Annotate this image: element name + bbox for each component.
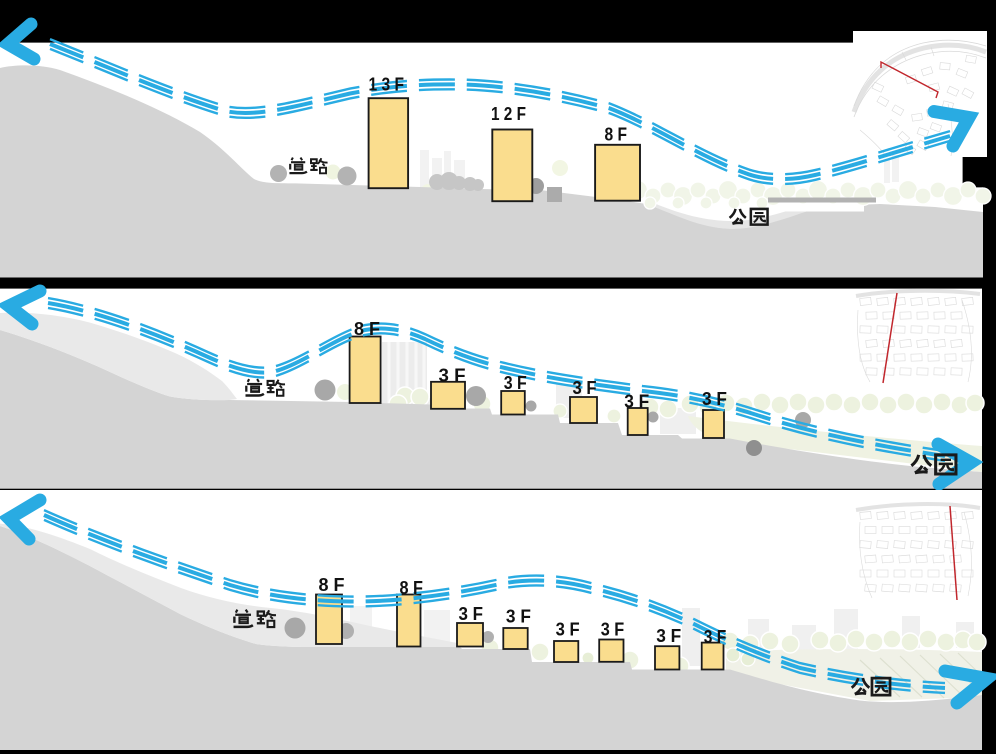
svg-text:3 F: 3 F xyxy=(459,604,484,624)
svg-text:1 3 F: 1 3 F xyxy=(369,75,405,95)
svg-text:8 F: 8 F xyxy=(400,578,424,598)
svg-text:3 F: 3 F xyxy=(506,607,531,627)
svg-text:8 F: 8 F xyxy=(605,125,628,145)
svg-text:8 F: 8 F xyxy=(354,319,380,339)
svg-text:3 F: 3 F xyxy=(504,373,527,393)
svg-text:3 F: 3 F xyxy=(656,626,681,646)
svg-text:1 2 F: 1 2 F xyxy=(491,104,526,124)
svg-text:3 F: 3 F xyxy=(573,378,597,398)
svg-text:3 F: 3 F xyxy=(439,366,466,386)
svg-text:3 F: 3 F xyxy=(704,627,727,647)
svg-text:3 F: 3 F xyxy=(556,620,580,640)
svg-text:8 F: 8 F xyxy=(319,575,345,595)
svg-text:3 F: 3 F xyxy=(702,389,727,409)
svg-text:3 F: 3 F xyxy=(624,392,649,412)
svg-text:3 F: 3 F xyxy=(601,620,625,640)
